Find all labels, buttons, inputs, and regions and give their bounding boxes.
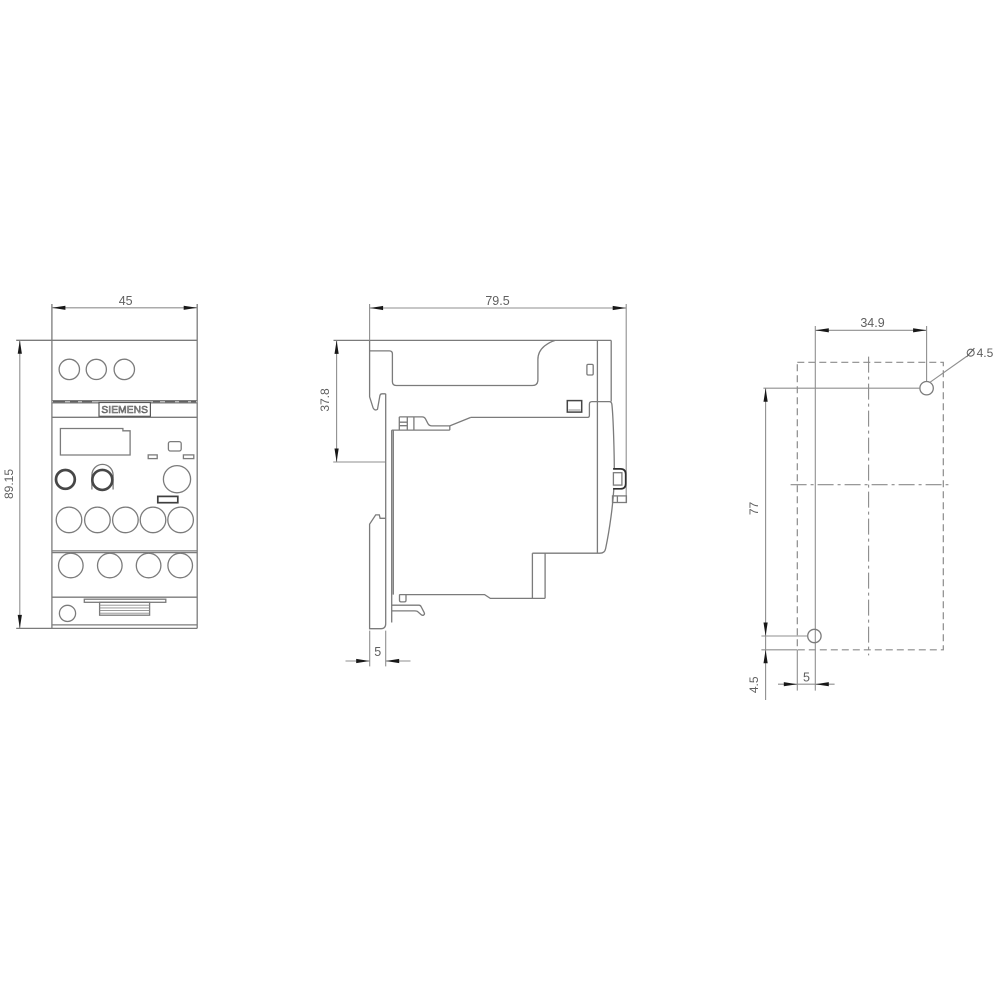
svg-text:37.8: 37.8 <box>318 388 332 412</box>
svg-text:45: 45 <box>119 294 133 308</box>
svg-text:5: 5 <box>803 671 810 685</box>
svg-text:79.5: 79.5 <box>485 294 509 308</box>
svg-text:4.5: 4.5 <box>977 346 994 360</box>
svg-text:34.9: 34.9 <box>860 316 884 330</box>
svg-text:SIEMENS: SIEMENS <box>101 405 148 416</box>
svg-text:5: 5 <box>374 645 381 659</box>
svg-text:89.15: 89.15 <box>2 469 16 499</box>
svg-text:4.5: 4.5 <box>747 676 761 693</box>
svg-text:77: 77 <box>747 502 761 516</box>
